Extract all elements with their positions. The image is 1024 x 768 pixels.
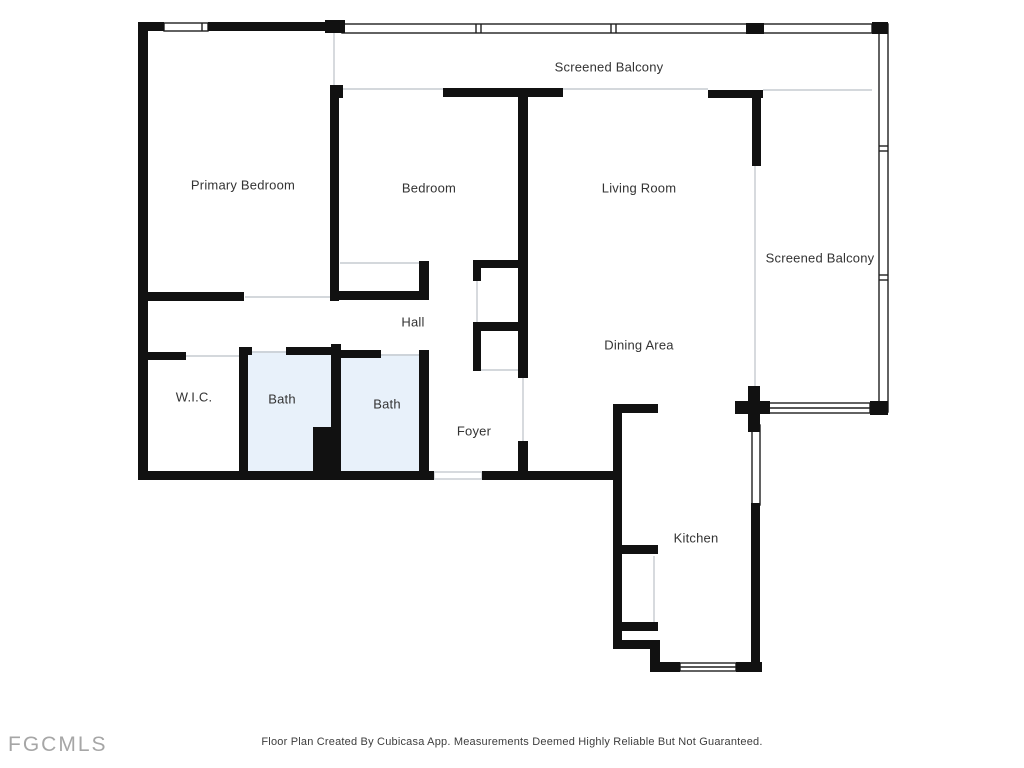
wall-cross-horizontal xyxy=(735,401,770,414)
room-label-bath-left: Bath xyxy=(268,392,296,407)
wall-top-mid xyxy=(208,22,330,31)
wall-pantry-top xyxy=(620,545,658,554)
wall-closet-stub xyxy=(473,268,481,281)
wall-top-cap xyxy=(325,20,345,33)
room-label-living-room: Living Room xyxy=(602,181,676,196)
wall-outer-left xyxy=(138,22,148,480)
opening-lines xyxy=(186,31,872,622)
wall-rail-block xyxy=(746,23,764,34)
floor-plan-drawing xyxy=(0,0,1024,768)
wall-living-top-corner xyxy=(708,90,763,98)
wall-rail-corner-bottom xyxy=(870,401,888,415)
wall-plumbing-block xyxy=(313,427,339,473)
wall-pantry-bottom xyxy=(620,622,658,631)
wall-bottom-mid xyxy=(482,471,616,480)
wall-bottom-left xyxy=(138,471,434,480)
wall-bath-left-top-a xyxy=(239,347,252,355)
room-label-wic: W.I.C. xyxy=(176,390,213,405)
wall-primary-bedroom-right xyxy=(330,85,339,301)
room-label-screened-balcony-top: Screened Balcony xyxy=(555,60,664,75)
wall-bath-right-east xyxy=(419,350,429,477)
room-label-hall: Hall xyxy=(401,315,424,330)
wall-bath-right-top xyxy=(341,350,381,358)
wall-bedroom-closet-jamb xyxy=(419,261,429,300)
wall-bedroom-top xyxy=(443,88,563,97)
wall-bedroom-living xyxy=(518,97,528,378)
room-label-screened-balcony-right: Screened Balcony xyxy=(766,251,875,266)
wall-living-balcony xyxy=(752,98,761,166)
room-label-foyer: Foyer xyxy=(457,424,491,439)
wall-top-left xyxy=(138,22,164,31)
room-label-primary-bedroom: Primary Bedroom xyxy=(191,178,295,193)
wall-kitchen-left xyxy=(613,404,622,649)
wall-rail-corner-top xyxy=(872,22,888,34)
wall-bedroom-bottom xyxy=(333,291,429,300)
room-label-bedroom: Bedroom xyxy=(402,181,456,196)
room-label-bath-right: Bath xyxy=(373,397,401,412)
floor-plan-page: Screened Balcony Primary Bedroom Bedroom… xyxy=(0,0,1024,768)
wall-bath-left-west xyxy=(239,347,248,473)
kitchen-side-window xyxy=(752,425,760,505)
room-label-dining-area: Dining Area xyxy=(604,338,673,353)
room-label-kitchen: Kitchen xyxy=(674,531,719,546)
wall-kitchen-bottom-a xyxy=(650,662,680,672)
walls xyxy=(138,20,888,672)
wall-wic-stub xyxy=(141,352,186,360)
entry-door-line xyxy=(434,472,482,479)
footer-disclaimer: Floor Plan Created By Cubicasa App. Meas… xyxy=(0,736,1024,748)
bath-right-fill xyxy=(336,354,422,475)
wall-closet-left xyxy=(473,322,481,371)
balcony-right-rail xyxy=(879,24,888,412)
balcony-top-rail xyxy=(342,24,872,33)
wall-kitchen-right xyxy=(751,503,760,672)
wall-closet-top xyxy=(473,260,520,268)
wall-wic-top xyxy=(145,292,244,301)
wall-bath-left-top-b xyxy=(286,347,332,355)
